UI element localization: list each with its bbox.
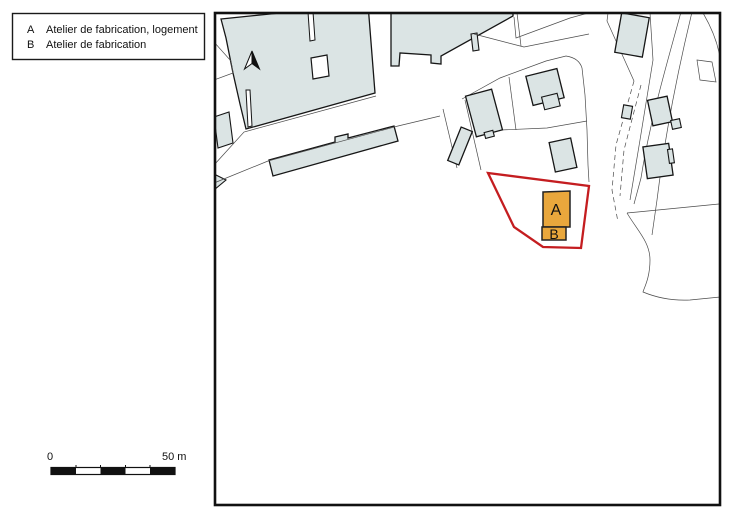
svg-text:B: B bbox=[549, 226, 558, 242]
svg-text:A: A bbox=[27, 24, 35, 36]
svg-text:0: 0 bbox=[47, 451, 53, 463]
svg-text:50 m: 50 m bbox=[162, 451, 186, 463]
svg-text:Atelier de fabrication: Atelier de fabrication bbox=[46, 39, 146, 51]
svg-text:Atelier de fabrication, logeme: Atelier de fabrication, logement bbox=[46, 24, 198, 36]
svg-text:B: B bbox=[27, 39, 34, 51]
svg-text:A: A bbox=[551, 202, 562, 219]
